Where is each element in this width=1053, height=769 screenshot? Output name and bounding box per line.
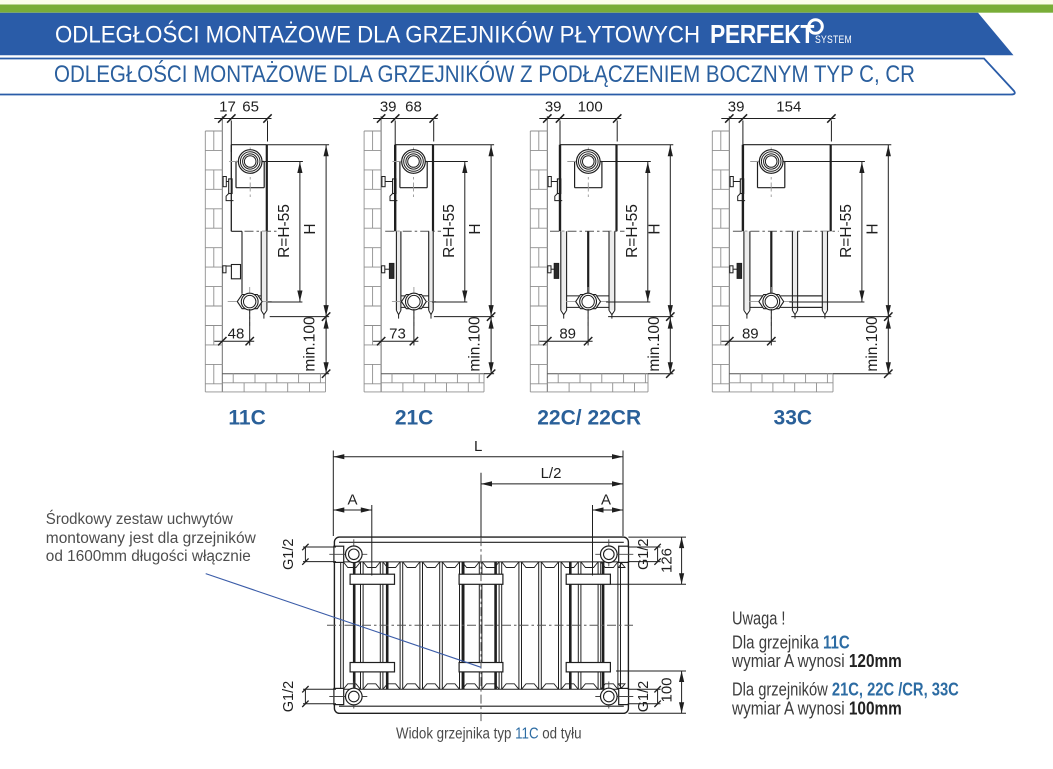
svg-text:ODLEGŁOŚCI MONTAŻOWE DLA GR: ODLEGŁOŚCI MONTAŻOWE DLA GRZEJNIKÓW PŁYT… xyxy=(55,21,700,49)
svg-text:L/2: L/2 xyxy=(541,465,562,482)
svg-text:39: 39 xyxy=(380,99,397,116)
svg-text:H: H xyxy=(864,223,881,234)
svg-text:min.100: min.100 xyxy=(302,316,319,372)
svg-text:min.100: min.100 xyxy=(864,316,881,372)
svg-text:SYSTEM: SYSTEM xyxy=(815,34,852,46)
svg-text:G1/2: G1/2 xyxy=(281,681,297,712)
svg-text:48: 48 xyxy=(228,325,245,342)
svg-text:100: 100 xyxy=(658,677,675,702)
svg-text:100: 100 xyxy=(578,99,603,116)
svg-text:min.100: min.100 xyxy=(467,316,484,372)
svg-text:A: A xyxy=(601,491,611,508)
svg-text:68: 68 xyxy=(405,99,422,116)
svg-text:39: 39 xyxy=(728,99,745,116)
svg-text:73: 73 xyxy=(389,325,406,342)
svg-text:39: 39 xyxy=(545,99,562,116)
svg-text:H: H xyxy=(302,223,319,234)
svg-text:wymiar A wynosi 100mm: wymiar A wynosi 100mm xyxy=(731,699,902,719)
svg-text:21C: 21C xyxy=(395,406,434,429)
svg-text:A: A xyxy=(347,491,357,508)
svg-text:22C/ 22CR: 22C/ 22CR xyxy=(537,406,641,429)
svg-text:montowany jest dla grzejników: montowany jest dla grzejników xyxy=(46,530,257,547)
svg-text:G1/2: G1/2 xyxy=(636,539,652,570)
svg-text:wymiar A wynosi 120mm: wymiar A wynosi 120mm xyxy=(731,651,902,671)
svg-text:33C: 33C xyxy=(774,406,813,429)
svg-text:65: 65 xyxy=(242,99,259,116)
svg-text:H: H xyxy=(646,223,663,234)
svg-text:Dla grzejnika 11C: Dla grzejnika 11C xyxy=(732,632,850,652)
svg-text:89: 89 xyxy=(559,325,576,342)
svg-text:G1/2: G1/2 xyxy=(281,539,297,570)
svg-text:G1/2: G1/2 xyxy=(636,681,652,712)
svg-text:od 1600mm długości włącznie: od 1600mm długości włącznie xyxy=(46,548,251,565)
svg-text:Widok grzejnika typ 11C od tył: Widok grzejnika typ 11C od tyłu xyxy=(396,726,582,743)
svg-text:Dla grzejników 21C, 22C /CR, 3: Dla grzejników 21C, 22C /CR, 33C xyxy=(732,680,959,700)
svg-text:H: H xyxy=(467,223,484,234)
svg-text:min.100: min.100 xyxy=(646,316,663,372)
svg-text:R=H-55: R=H-55 xyxy=(276,204,293,258)
svg-text:89: 89 xyxy=(742,325,759,342)
svg-text:L: L xyxy=(474,438,482,455)
svg-text:ODLEGŁOŚCI MONTAŻOWE DLA GRZEJ: ODLEGŁOŚCI MONTAŻOWE DLA GRZEJNIKÓW Z PO… xyxy=(54,60,915,88)
svg-text:11C: 11C xyxy=(228,406,265,429)
svg-text:154: 154 xyxy=(776,99,801,116)
svg-text:Uwaga !: Uwaga ! xyxy=(732,609,786,629)
svg-text:126: 126 xyxy=(658,548,675,573)
svg-text:PERFEKT: PERFEKT xyxy=(710,19,815,49)
svg-text:R=H-55: R=H-55 xyxy=(838,204,855,258)
svg-text:Środkowy zestaw uchwytów: Środkowy zestaw uchwytów xyxy=(46,510,234,528)
svg-text:17: 17 xyxy=(219,99,236,116)
svg-text:R=H-55: R=H-55 xyxy=(624,204,641,258)
svg-text:R=H-55: R=H-55 xyxy=(441,204,458,258)
